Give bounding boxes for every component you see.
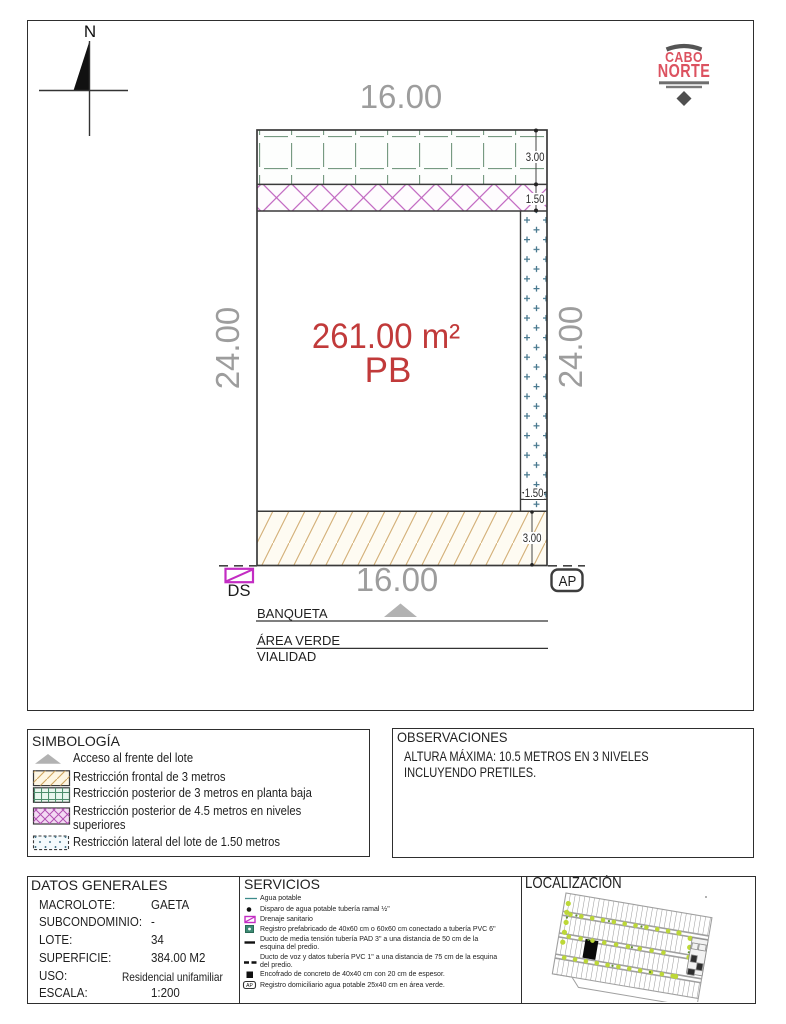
svg-text:AP: AP <box>246 983 253 989</box>
